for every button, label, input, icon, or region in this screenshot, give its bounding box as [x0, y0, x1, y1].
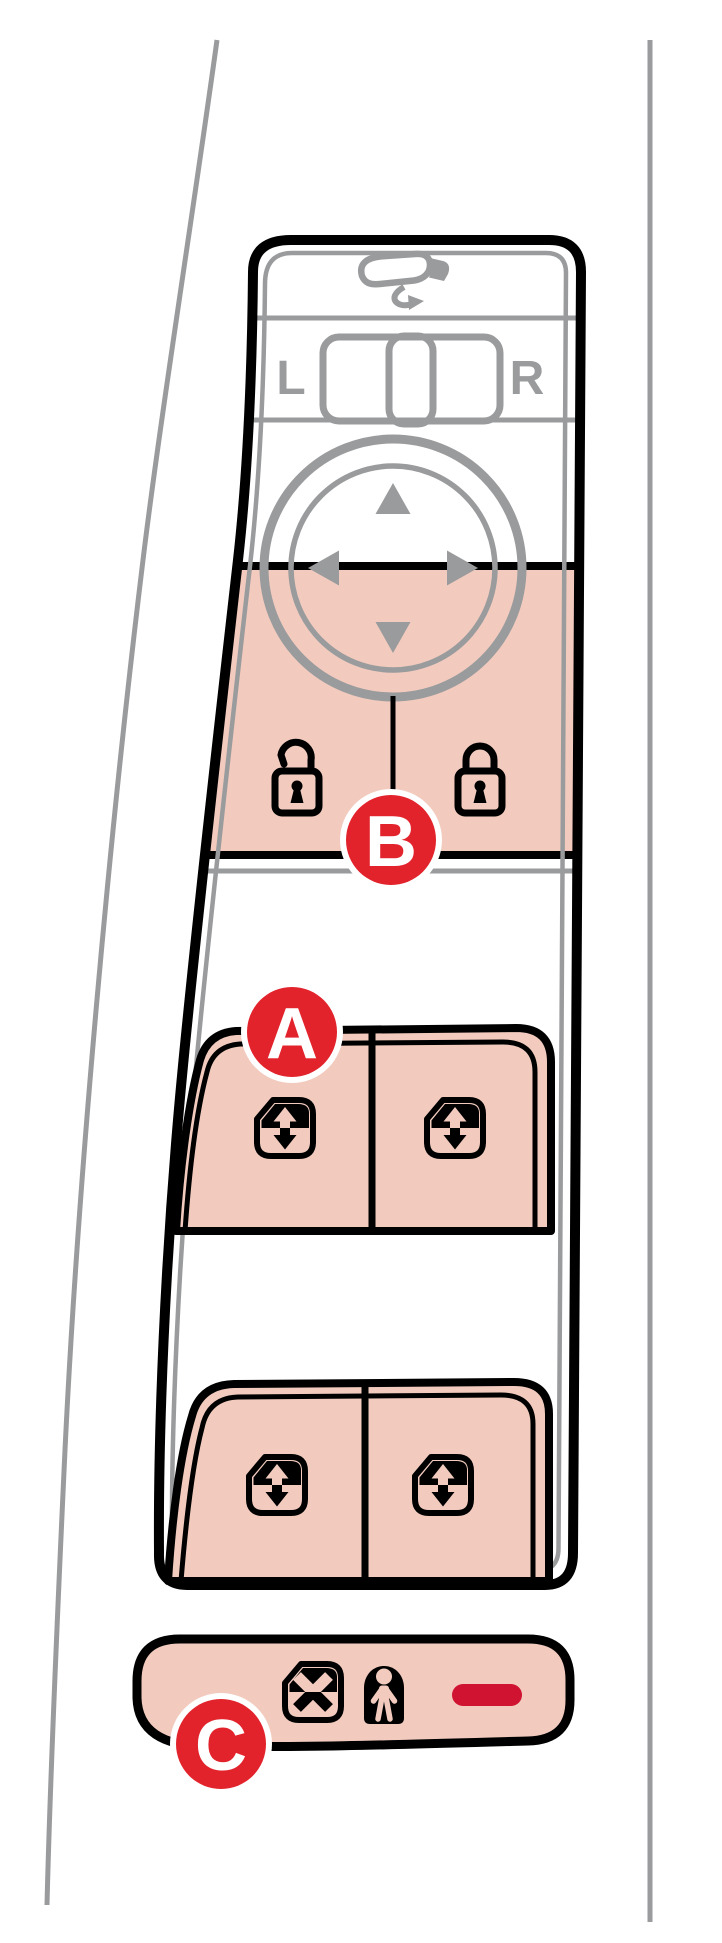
rear-window-switches: [168, 1382, 549, 1581]
callout-a-label: A: [266, 994, 318, 1074]
mirror-selector-left-label: L: [276, 352, 305, 405]
front-pod-outline: [176, 1028, 551, 1231]
callout-c-label: C: [195, 1706, 247, 1786]
callout-a: A: [241, 981, 343, 1083]
callout-b: B: [340, 789, 442, 891]
callout-b-label: B: [365, 802, 417, 882]
rear-pod-outline: [168, 1382, 549, 1581]
control-panel: L R: [140, 230, 600, 1600]
mirror-selector-right-label: R: [510, 352, 545, 405]
front-window-switches: [176, 1028, 551, 1231]
indicator-light: [452, 1684, 522, 1706]
callout-c: C: [170, 1693, 272, 1795]
child-safety-lock-icon: [364, 1666, 404, 1724]
door-panel-diagram: L R: [0, 0, 722, 1943]
